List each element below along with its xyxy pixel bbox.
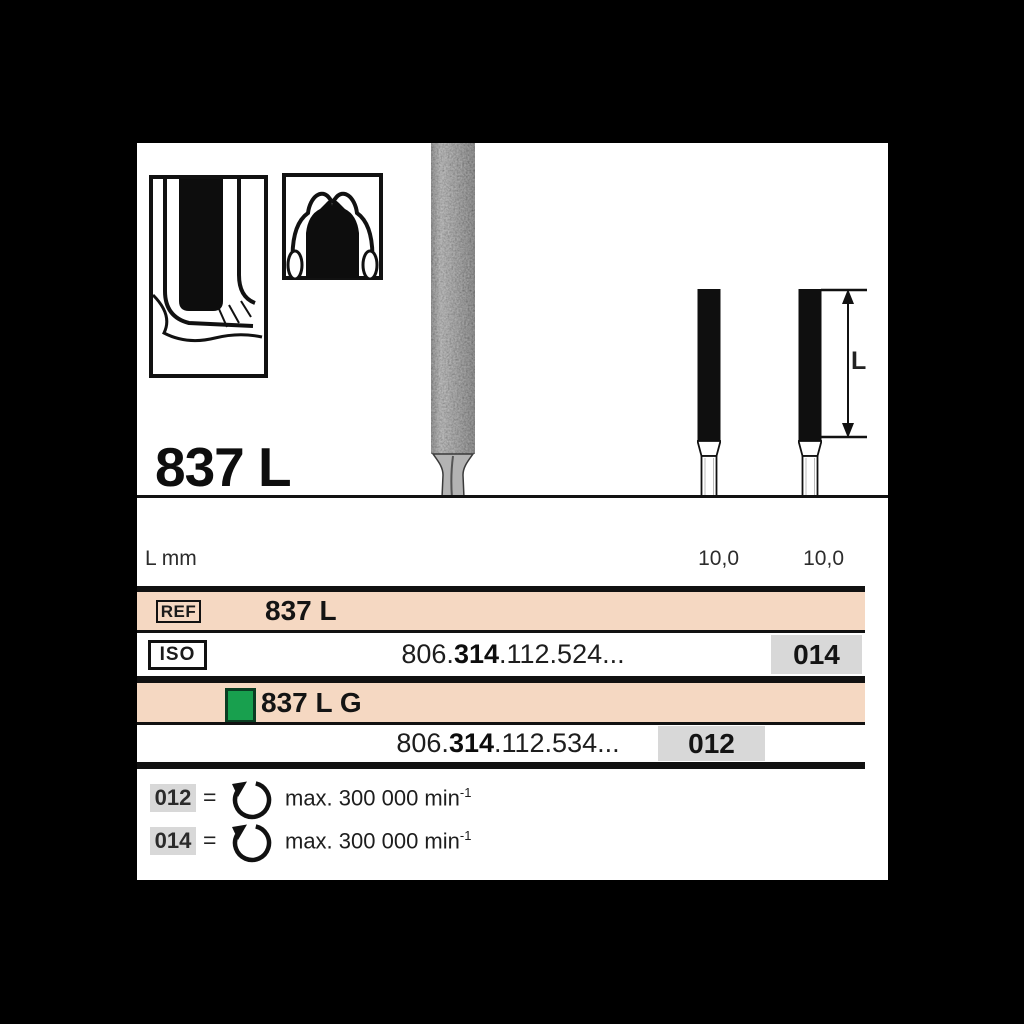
scan-background: L 837 L L mm 10,0 10,0 REF 837 L ISO 806… (0, 0, 1024, 1024)
iso-code: 806.314.112.524... (343, 639, 683, 670)
bur-schematic-right-icon (798, 289, 822, 498)
crown-margin-prep-icon (149, 175, 268, 378)
size-cell: 012 (658, 726, 765, 761)
bur-schematic-left-icon (697, 289, 721, 498)
size-badge: 012 (150, 784, 196, 812)
max-speed-text: max. 300 000 min-1 (285, 785, 471, 811)
dimension-row-label: L mm (145, 547, 197, 571)
occlusal-reduction-icon (282, 173, 383, 280)
variant-row: 837 L G (137, 683, 865, 722)
iso-badge-icon: ISO (148, 640, 207, 670)
dimension-value: 10,0 (687, 547, 739, 571)
green-grit-swatch-icon (225, 688, 256, 723)
rotation-direction-icon (229, 777, 275, 823)
figure-baseline (137, 495, 888, 498)
ref-row: REF 837 L (137, 592, 865, 630)
equals-sign: = (203, 827, 216, 854)
product-title: 837 L (155, 435, 291, 499)
iso-row: ISO 806.314.112.524... 014 (137, 633, 865, 676)
equals-sign: = (203, 784, 216, 811)
speed-legend-row: 014 = max. 300 000 min-1 (137, 820, 637, 866)
max-speed-text: max. 300 000 min-1 (285, 828, 471, 854)
iso-code: 806.314.112.534... (338, 728, 678, 759)
rotation-direction-icon (229, 820, 275, 866)
size-badge: 014 (150, 827, 196, 855)
ref-badge-icon: REF (150, 597, 207, 625)
dimension-value: 10,0 (792, 547, 844, 571)
diamond-bur-photo-icon (430, 143, 476, 498)
table-rule (137, 762, 865, 769)
size-cell: 014 (771, 635, 862, 674)
catalog-page: L 837 L L mm 10,0 10,0 REF 837 L ISO 806… (137, 143, 888, 880)
dimension-label: L (851, 347, 866, 376)
variant-number: 837 L G (261, 687, 362, 719)
table-rule (137, 676, 865, 683)
speed-legend-row: 012 = max. 300 000 min-1 (137, 777, 637, 823)
iso-row: 806.314.112.534... 012 (137, 725, 865, 762)
ref-number: 837 L (265, 595, 337, 627)
